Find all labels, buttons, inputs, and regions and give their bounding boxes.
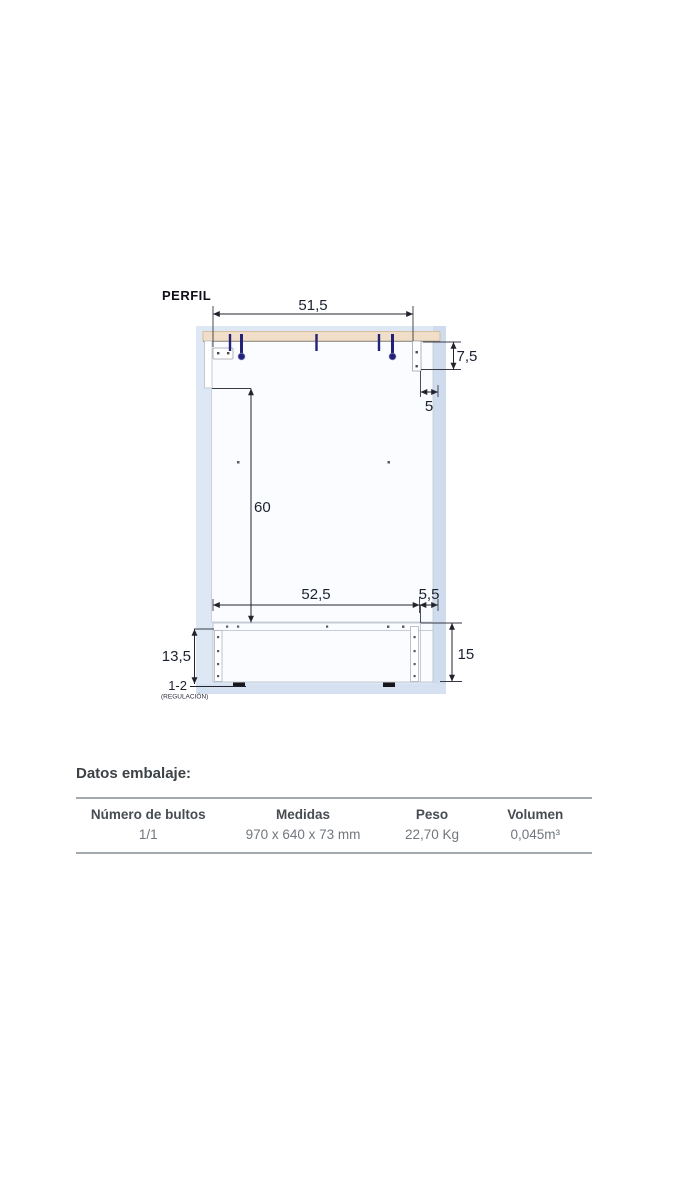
profile-diagram: PERFIL 51,5 7,5 5 60 52,5 5,5 bbox=[0, 0, 700, 760]
value-numero-de-bultos: 1/1 bbox=[76, 826, 220, 843]
dim-top-thickness-label: 7,5 bbox=[457, 348, 478, 365]
packing-table-header: Número de bultos Medidas Peso Volumen bbox=[76, 806, 592, 823]
dim-bottom-back-inset-label: 5,5 bbox=[419, 586, 440, 603]
dim-bottom-width-label: 52,5 bbox=[301, 586, 330, 603]
dim-plinth-back-label: 15 bbox=[458, 646, 475, 663]
packing-table-row: 1/1 970 x 640 x 73 mm 22,70 Kg 0,045m³ bbox=[76, 823, 592, 843]
value-volumen: 0,045m³ bbox=[478, 826, 592, 843]
plinth bbox=[213, 623, 433, 682]
col-volumen: Volumen bbox=[478, 806, 592, 823]
col-numero-de-bultos: Número de bultos bbox=[76, 806, 220, 823]
dim-side-height-label: 60 bbox=[254, 499, 271, 516]
packing-table: Número de bultos Medidas Peso Volumen 1/… bbox=[76, 797, 592, 854]
dim-feet-note-label: (REGULACIÓN) bbox=[161, 692, 208, 701]
dim-top-back-inset-label: 5 bbox=[425, 398, 433, 415]
front-edge-strip bbox=[205, 341, 213, 388]
col-peso: Peso bbox=[386, 806, 479, 823]
packing-title: Datos embalaje: bbox=[76, 765, 592, 782]
value-peso: 22,70 Kg bbox=[386, 826, 479, 843]
back-plate bbox=[413, 341, 422, 371]
diagram-title: PERFIL bbox=[162, 288, 211, 303]
dim-top-width-label: 51,5 bbox=[298, 297, 327, 314]
value-medidas: 970 x 640 x 73 mm bbox=[220, 826, 385, 843]
col-medidas: Medidas bbox=[220, 806, 385, 823]
backdrop-right-band bbox=[433, 326, 446, 694]
dim-plinth-front-label: 13,5 bbox=[162, 648, 191, 665]
side-panel bbox=[212, 341, 434, 622]
top-panel bbox=[203, 332, 440, 342]
dim-feet-range-label: 1-2 bbox=[168, 678, 187, 693]
packing-section: Datos embalaje: Número de bultos Medidas… bbox=[76, 765, 592, 854]
